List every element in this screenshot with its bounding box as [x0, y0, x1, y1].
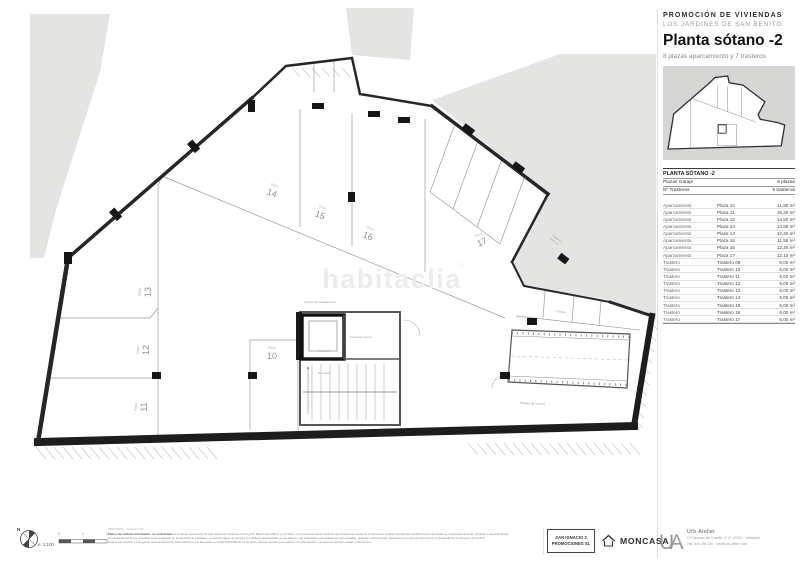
space-type: Trastero: [663, 303, 717, 308]
footer-separator: [543, 528, 544, 554]
table-row: TrasteroTrastero 176,00 m²: [663, 316, 795, 323]
room-label-vestibulo: Vestíbulo previo: [350, 335, 372, 339]
space-area: 6,00 m²: [763, 310, 795, 315]
studio-contact: Telf. 640 258 330 · info@urb-atelier.com: [687, 542, 797, 547]
space-name: Plaza 15: [717, 238, 763, 243]
svg-text:13: 13: [143, 287, 153, 297]
svg-text:11: 11: [139, 402, 149, 411]
svg-text:N: N: [17, 527, 20, 532]
table-row: TrasteroTrastero 106,00 m²: [663, 266, 795, 273]
watermark: habitaclia ®: [322, 262, 465, 294]
table-row: AparcamientoPlaza 1511,55 m²: [663, 238, 795, 245]
space-area: 15,30 m²: [763, 210, 795, 215]
version-note: 06/07/2020 - Versión V.07: [108, 527, 540, 531]
table-row: TrasteroTrastero 096,00 m²: [663, 259, 795, 266]
developer-name-line2: PROMOCIONES SL: [548, 541, 594, 547]
summary-row: Plazas Garaje 8 plazas: [663, 179, 795, 187]
space-area: 6,00 m²: [763, 303, 795, 308]
table-row: AparcamientoPlaza 1314,65 m²: [663, 223, 795, 230]
table-title: PLANTA SÓTANO -2: [663, 168, 795, 179]
space-name: Plaza 13: [717, 224, 763, 229]
table-row: AparcamientoPlaza 1412,20 m²: [663, 231, 795, 238]
floor-plan: habitaclia ® Plaza 14 Plaza 15 Plaza 16 …: [0, 0, 660, 566]
table-row: TrasteroTrastero 126,00 m²: [663, 281, 795, 288]
space-area: 14,65 m²: [763, 224, 795, 229]
space-name: Trastero 14: [717, 295, 763, 300]
space-type: Aparcamiento: [663, 253, 717, 258]
space-area: 11,80 m²: [763, 203, 795, 208]
sheet-title: Planta sótano -2: [663, 32, 795, 50]
svg-text:Plaza: Plaza: [136, 346, 140, 354]
space-type: Trastero: [663, 295, 717, 300]
space-area: 6,00 m²: [763, 317, 795, 322]
space-area: 11,55 m²: [763, 238, 795, 243]
space-type: Aparcamiento: [663, 203, 717, 208]
table-row: TrasteroTrastero 116,00 m²: [663, 273, 795, 280]
space-area: 6,00 m²: [763, 267, 795, 272]
scale-bar: 0 1 2: [56, 530, 114, 548]
space-name: Trastero 13: [717, 288, 763, 293]
room-label-instalaciones: Cuarto de instalaciones: [304, 300, 337, 304]
svg-text:habitaclia: habitaclia: [322, 264, 462, 294]
table-row: TrasteroTrastero 146,00 m²: [663, 295, 795, 302]
sheet-subtitle: 8 plazas aparcamiento y 7 trasteros: [663, 53, 795, 60]
developer-box: SAN IGNACIO 3 PROMOCIONES SL: [547, 529, 595, 553]
key-plan-thumbnail: [663, 66, 795, 160]
space-type: Trastero: [663, 267, 717, 272]
project-name: LOS JARDINES DE SAN BENITO: [663, 21, 795, 28]
space-area: 12,20 m²: [763, 231, 795, 236]
summary-value: 9 trasteros: [772, 188, 795, 193]
table-row: TrasteroTrastero 166,00 m²: [663, 309, 795, 316]
space-name: Trastero 09: [717, 260, 763, 265]
svg-text:Plaza: Plaza: [268, 346, 276, 350]
house-icon: [600, 533, 617, 548]
svg-text:0: 0: [58, 532, 60, 536]
svg-text:UA: UA: [659, 531, 684, 554]
summary-label: Nº Trasteros: [663, 188, 690, 193]
studio-address: C/ Cánovas del Castillo, 4, 4º, 47002 · …: [687, 536, 797, 541]
panel-divider: [657, 8, 658, 558]
space-type: Trastero: [663, 260, 717, 265]
space-type: Aparcamiento: [663, 210, 717, 215]
summary-value: 8 plazas: [777, 180, 795, 185]
space-name: Plaza 12: [717, 217, 763, 222]
room-label-escalera: Escalera: [318, 371, 330, 375]
space-type: Trastero: [663, 281, 717, 286]
space-name: Trastero 10: [717, 267, 763, 272]
space-name: Plaza 10: [717, 203, 763, 208]
space-area: 12,15 m²: [763, 253, 795, 258]
space-name: Trastero 17: [717, 317, 763, 322]
table-row: TrasteroTrastero 136,00 m²: [663, 288, 795, 295]
space-type: Trastero: [663, 288, 717, 293]
spaces-table: PLANTA SÓTANO -2 Plazas Garaje 8 plazas …: [663, 168, 795, 324]
plaza-13-label: Plaza 13: [138, 287, 153, 297]
space-area: 6,00 m²: [763, 288, 795, 293]
space-area: 6,00 m²: [763, 295, 795, 300]
space-type: Trastero: [663, 310, 717, 315]
table-rows: AparcamientoPlaza 1011,80 m² Aparcamient…: [663, 202, 795, 324]
svg-text:12: 12: [141, 345, 151, 355]
disclaimer-line-3: Toda la información y entrega de documen…: [108, 541, 540, 545]
space-area: 6,00 m²: [763, 281, 795, 286]
ua-monogram: UA: [658, 528, 685, 555]
svg-text:10: 10: [267, 351, 277, 361]
space-type: Aparcamiento: [663, 224, 717, 229]
space-name: Trastero 11: [717, 274, 763, 279]
studio-block: Urb·Atelier C/ Cánovas del Castillo, 4, …: [687, 529, 797, 547]
space-type: Aparcamiento: [663, 245, 717, 250]
space-type: Trastero: [663, 317, 717, 322]
space-area: 14,50 m²: [763, 217, 795, 222]
table-row: TrasteroTrastero 156,00 m²: [663, 302, 795, 309]
disclaimer: 06/07/2020 - Versión V.07 Planos de cará…: [108, 527, 540, 544]
space-area: 12,20 m²: [763, 245, 795, 250]
space-type: Aparcamiento: [663, 231, 717, 236]
space-area: 6,00 m²: [763, 260, 795, 265]
space-name: Trastero 16: [717, 310, 763, 315]
svg-text:Plaza: Plaza: [134, 403, 138, 411]
space-type: Aparcamiento: [663, 217, 717, 222]
space-area: 6,00 m²: [763, 274, 795, 279]
space-name: Trastero 12: [717, 281, 763, 286]
sheet: habitaclia ® Plaza 14 Plaza 15 Plaza 16 …: [0, 0, 800, 566]
space-name: Trastero 15: [717, 303, 763, 308]
space-name: Plaza 14: [717, 231, 763, 236]
table-row: AparcamientoPlaza 1011,80 m²: [663, 202, 795, 209]
project-eyebrow: PROMOCIÓN DE VIVIENDAS: [663, 12, 795, 19]
table-row: AparcamientoPlaza 1115,30 m²: [663, 209, 795, 216]
summary-label: Plazas Garaje: [663, 180, 693, 185]
scale-label: e: 1:100: [38, 542, 54, 547]
north-compass-icon: N: [16, 526, 44, 554]
studio-name: Urb·Atelier: [687, 529, 797, 535]
svg-text:Plaza: Plaza: [138, 288, 142, 296]
space-name: Plaza 16: [717, 245, 763, 250]
svg-text:®: ®: [459, 262, 465, 270]
svg-text:1: 1: [82, 532, 84, 536]
space-type: Trastero: [663, 274, 717, 279]
table-row: AparcamientoPlaza 1712,15 m²: [663, 252, 795, 259]
space-name: Plaza 17: [717, 253, 763, 258]
plaza-12-label: Plaza 12: [136, 345, 151, 355]
title-block: PROMOCIÓN DE VIVIENDAS LOS JARDINES DE S…: [663, 12, 795, 60]
table-row: AparcamientoPlaza 1214,50 m²: [663, 216, 795, 223]
plaza-10-label: Plaza 10: [267, 346, 277, 361]
table-row: AparcamientoPlaza 1612,20 m²: [663, 245, 795, 252]
space-type: Aparcamiento: [663, 238, 717, 243]
access-ramp: [508, 330, 630, 388]
elevator: [302, 315, 344, 359]
plaza-11-label: Plaza 11: [134, 402, 149, 411]
space-name: Plaza 11: [717, 210, 763, 215]
summary-row: Nº Trasteros 9 trasteros: [663, 187, 795, 195]
